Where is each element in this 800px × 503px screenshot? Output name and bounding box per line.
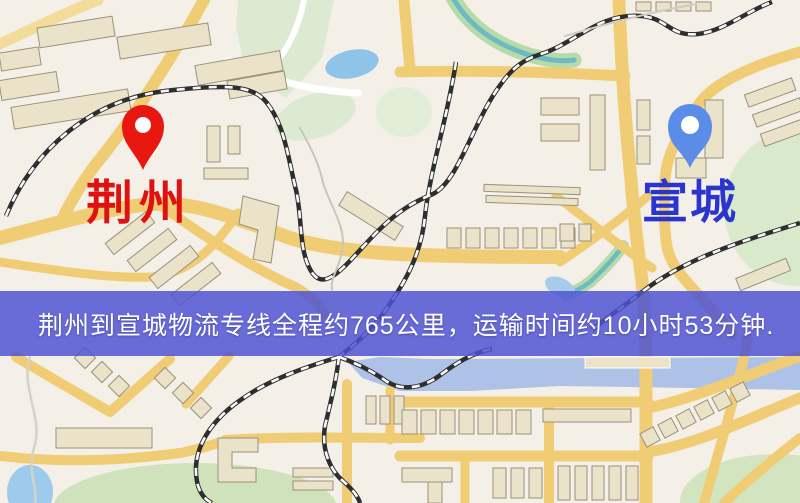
destination-pin-hole (681, 116, 699, 134)
destination-city-label: 宣城 (642, 177, 738, 228)
map-screenshot: 荆州 宣城 荆州到宣城物流专线全程约765公里，运输时间约10小时53分钟. (0, 0, 800, 503)
route-info-text: 荆州到宣城物流专线全程约765公里，运输时间约10小时53分钟. (0, 306, 774, 342)
origin-city-label: 荆州 (86, 178, 192, 230)
route-info-banner: 荆州到宣城物流专线全程约765公里，运输时间约10小时53分钟. (0, 291, 800, 356)
map-canvas: 荆州 宣城 (0, 0, 800, 503)
origin-pin-hole (135, 117, 151, 133)
